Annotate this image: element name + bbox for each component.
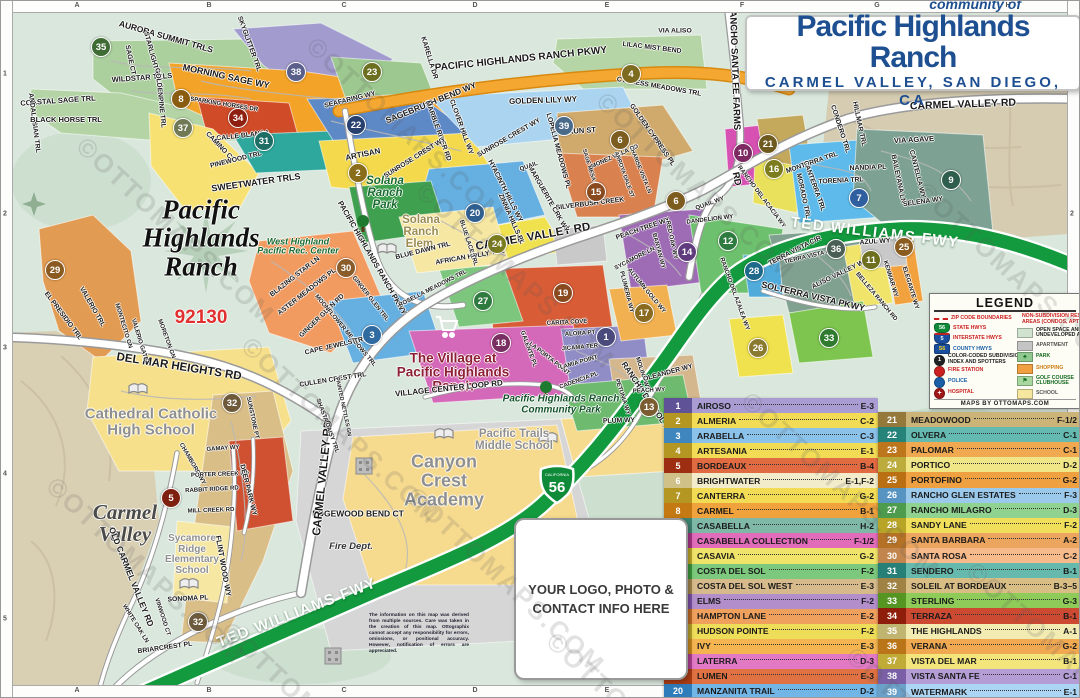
dotted-leader [974, 418, 1054, 419]
legend-item-label: COUNTY HWYS [953, 347, 992, 353]
index-row-gridref: G-2 [1063, 641, 1080, 651]
index-row: 29SANTA BARBARAA-2 [878, 533, 1080, 548]
index-row-name: HAMPTON LANE [692, 611, 766, 621]
dotted-leader [763, 479, 842, 480]
dotted-leader [965, 478, 1060, 479]
svg-text:CALIFORNIA: CALIFORNIA [545, 472, 569, 477]
index-row-gridref: D-3 [1063, 505, 1080, 515]
index-row-name: OLVERA [906, 430, 946, 440]
grid-letter: B [206, 2, 211, 9]
index-row-gridref: C-3 [860, 431, 878, 441]
index-row-gridref: F-1/2 [854, 536, 878, 546]
index-row-gridref: B-3–5 [1054, 581, 1080, 591]
dotted-leader [724, 599, 858, 600]
index-row-gridref: C-2 [860, 416, 878, 426]
svg-text:56: 56 [549, 479, 566, 496]
index-row: 35THE HIGHLANDSA-1 [878, 624, 1080, 639]
index-row-name: VERANA [906, 641, 947, 651]
index-row-gridref: F-2 [861, 596, 878, 606]
index-row-gridref: F-2 [1064, 520, 1080, 530]
index-row-name: TERRAZA [906, 611, 952, 621]
index-row-name: PALOMAR [906, 445, 954, 455]
dotted-leader [737, 509, 857, 510]
index-row-gridref: H-2 [860, 521, 878, 531]
legend-fire-icon [934, 366, 945, 377]
legend-item: NON-SUBDIVISION RESIDENTIAL AREAS (CONDO… [1017, 314, 1078, 325]
index-row: 37VISTA DEL MARB-1 [878, 654, 1080, 669]
index-row-number: 8 [664, 503, 692, 518]
index-row-number: 31 [878, 563, 906, 578]
index-row-number: 32 [878, 578, 906, 593]
dotted-leader [970, 523, 1061, 524]
index-row-gridref: F-3 [1064, 490, 1080, 500]
grid-number: 2 [1070, 211, 1074, 218]
logo-placeholder-box: YOUR LOGO, PHOTO & CONTACT INFO HERE [514, 518, 688, 680]
index-row: 34TERRAZAB-1 [878, 608, 1080, 623]
legend-police-icon [934, 377, 945, 388]
dotted-leader [778, 689, 857, 690]
dotted-leader [731, 674, 858, 675]
index-row: 22OLVERAC-1 [878, 427, 1080, 442]
index-row-gridref: E-1,F-2 [845, 476, 878, 486]
index-row: 6BRIGHTWATERE-1,F-2 [664, 473, 878, 488]
grid-number: 5 [3, 616, 7, 623]
disclaimer-text: The information on this map was derived … [369, 613, 469, 655]
index-row-gridref: E-1 [1064, 687, 1080, 697]
index-row: 38VISTA SANTA FEC-1 [878, 669, 1080, 684]
index-row-name: THE HIGHLANDS [906, 626, 982, 636]
legend-sw-icon: ♣ [1017, 352, 1033, 362]
index-row-name: VISTA DEL MAR [906, 656, 977, 666]
index-row-name: COSTA DEL SOL WEST [692, 581, 793, 591]
legend-item: APARTMENT [1017, 341, 1078, 351]
index-row-name: PORTICO [906, 460, 950, 470]
index-row-name: COSTA DEL SOL [692, 566, 766, 576]
index-row: 8CARMELB-1 [664, 503, 878, 518]
dotted-leader [747, 434, 857, 435]
school-book-icon [378, 244, 396, 253]
legend-item-label: ZIP CODE BOUNDARIES [951, 316, 1012, 322]
legend-item: +HOSPITAL [934, 388, 1015, 399]
index-row-gridref: C-2 [1063, 551, 1080, 561]
index-col-left: 1AIROSOE-32ALMERIAC-23ARABELLAC-34ARTESA… [664, 398, 878, 698]
legend-item: ⚑GOLF COURSE CLUBHOUSE [1017, 376, 1078, 387]
legend-item-label: GOLF COURSE CLUBHOUSE [1036, 376, 1074, 387]
legend-item-label: COLOR-CODED SUBDIVISION INDEX AND SPOTTE… [948, 354, 1022, 365]
index-row-name: HUDSON POINTE [692, 626, 769, 636]
index-row-gridref: G-3 [1063, 596, 1080, 606]
legend-title: LEGEND [934, 296, 1076, 312]
legend-item: ♣PARK [1017, 352, 1078, 362]
dotted-leader [738, 554, 857, 555]
index-row-gridref: B-1 [1063, 566, 1080, 576]
index-row-name: ALMERIA [692, 416, 736, 426]
index-row-number: 1 [664, 398, 692, 413]
dotted-leader [748, 494, 856, 495]
index-row: 19LUMENE-3 [664, 669, 878, 684]
dotted-leader [811, 539, 851, 540]
index-row: 13COSTA DEL SOL WESTE-3 [664, 579, 878, 594]
index-row-number: 28 [878, 518, 906, 533]
legend-item-label: HOSPITAL [948, 390, 974, 396]
index-row: 33STERLINGG-3 [878, 593, 1080, 608]
index-row: 3ARABELLAC-3 [664, 428, 878, 443]
index-row-number: 35 [878, 624, 906, 639]
index-row-gridref: C-1 [1063, 430, 1080, 440]
index-row-name: VISTA SANTA FE [906, 671, 980, 681]
index-row-number: 29 [878, 533, 906, 548]
grid-letter: C [341, 687, 346, 694]
index-row: 36VERANAG-2 [878, 639, 1080, 654]
dotted-leader [995, 508, 1060, 509]
index-row: 17IVYE-3 [664, 639, 878, 654]
index-row-name: SANTA BARBARA [906, 535, 985, 545]
legend-sw-icon: ⚑ [1017, 376, 1033, 386]
dotted-leader [769, 569, 859, 570]
legend-col-right: NON-SUBDIVISION RESIDENTIAL AREAS (CONDO… [1017, 314, 1078, 398]
index-row: 16HUDSON POINTEF-2 [664, 624, 878, 639]
dotted-leader [750, 449, 857, 450]
legend-col-left: ZIP CODE BOUNDARIES56STATE HWYS5INTERSTA… [934, 314, 1015, 398]
ruler-left: 12345 [1, 1, 13, 698]
index-row-number: 30 [878, 548, 906, 563]
index-row-name: CASABELLA COLLECTION [692, 536, 808, 546]
grid-letter: E [605, 687, 610, 694]
index-row: 1AIROSOE-3 [664, 398, 878, 413]
index-row-name: MEADOWOOD [906, 415, 971, 425]
index-row: 32SOLEIL AT BORDEAUXB-3–5 [878, 578, 1080, 593]
index-row: 4ARTESANIAE-1 [664, 443, 878, 458]
index-row: 23PALOMARC-1 [878, 442, 1080, 457]
legend-sw-icon [1017, 341, 1033, 351]
grid-letter: A [74, 687, 79, 694]
index-row-gridref: D-2 [860, 686, 878, 696]
index-row-name: CASAVIA [692, 551, 735, 561]
legend-item-label: SHOPPING [1036, 366, 1063, 372]
school-book-icon [129, 384, 147, 393]
legend-item: 1COLOR-CODED SUBDIVISION INDEX AND SPOTT… [934, 354, 1015, 365]
building-icon [356, 458, 372, 474]
index-row-gridref: B-1 [1063, 611, 1080, 621]
dotted-leader [950, 644, 1059, 645]
community-of-label: community of [753, 0, 1073, 11]
index-row-name: LUMEN [692, 671, 728, 681]
index-row: 20MANZANITA TRAILD-2 [664, 684, 878, 698]
title-block: community of Pacific Highlands Ranch CAR… [745, 15, 1080, 91]
index-row: 26RANCHO GLEN ESTATESF-3 [878, 488, 1080, 503]
index-row: 10CASABELLA COLLECTIONF-1/2 [664, 533, 878, 548]
map-page: CALIFORNIA 56 Pacific Highlands Ranch921… [0, 0, 1080, 698]
index-row-gridref: E-2 [861, 611, 878, 621]
index-row-name: SANTA ROSA [906, 551, 967, 561]
grid-letter: A [74, 2, 79, 9]
dotted-leader [714, 644, 858, 645]
dotted-leader [988, 538, 1060, 539]
index-row-name: RANCHO MILAGRO [906, 505, 992, 515]
legend-item-label: OPEN SPACE AND UNDEVELOPED AREAS [1036, 328, 1080, 339]
dotted-leader [985, 629, 1060, 630]
legend-zip-icon [934, 318, 948, 320]
index-row-number: 7 [664, 488, 692, 503]
index-row: 31SENDEROB-1 [878, 563, 1080, 578]
dotted-leader [740, 659, 857, 660]
legend-item: SHOPPING [1017, 364, 1078, 374]
legend-footer: MAPS BY OTTOMAPS.COM [934, 399, 1076, 407]
legend-item: 5INTERSTATE HWYS [934, 333, 1015, 344]
index-row-name: CASABELLA [692, 521, 750, 531]
legend-item: POLICE [934, 377, 1015, 388]
index-row-name: SANDY LANE [906, 520, 967, 530]
legend-sw-icon [1017, 364, 1033, 374]
index-row: 7CANTERRAG-2 [664, 488, 878, 503]
index-row-number: 21 [878, 412, 906, 427]
index-row-number: 6 [664, 473, 692, 488]
legend-item: 56STATE HWYS [934, 323, 1015, 333]
legend-item-label: APARTMENT [1036, 343, 1068, 349]
index-row-number: 2 [664, 413, 692, 428]
legend-item-label: STATE HWYS [953, 326, 986, 332]
index-row-gridref: B-1 [860, 506, 878, 516]
index-row-name: AIROSO [692, 401, 731, 411]
index-row: 39WATERMARKE-1 [878, 684, 1080, 698]
index-row-name: CANTERRA [692, 491, 745, 501]
index-row: 15HAMPTON LANEE-2 [664, 609, 878, 624]
index-row: 24PORTICOD-2 [878, 457, 1080, 472]
index-row-number: 5 [664, 458, 692, 473]
index-row-gridref: C-1 [1063, 671, 1080, 681]
grid-letter: D [472, 687, 477, 694]
index-row-number: 33 [878, 593, 906, 608]
dotted-leader [970, 554, 1060, 555]
index-row: 5BORDEAUXB-4 [664, 458, 878, 473]
index-row: 2ALMERIAC-2 [664, 413, 878, 428]
legend-sw-icon [1017, 389, 1033, 399]
region-solana-ranch-elem [399, 207, 509, 273]
index-row-gridref: E-1 [861, 446, 878, 456]
index-row-gridref: B-1 [1063, 656, 1080, 666]
index-row-number: 3 [664, 428, 692, 443]
index-row-gridref: F-2 [861, 626, 878, 636]
legend-state-icon: 56 [934, 323, 950, 333]
index-row-number: 23 [878, 442, 906, 457]
index-row: 25PORTOFINOG-2 [878, 472, 1080, 487]
index-row: 9CASABELLAH-2 [664, 518, 878, 533]
legend-sw-icon [1017, 328, 1033, 338]
index-row: 21MEADOWOODF-1/2 [878, 412, 1080, 427]
legend-item: SCHOOL [1017, 389, 1078, 399]
legend-item: ZIP CODE BOUNDARIES [934, 314, 1015, 323]
index-row-name: ARTESANIA [692, 446, 747, 456]
index-row-name: ELMS [692, 596, 721, 606]
grid-letter: D [472, 2, 477, 9]
page-subtitle: CARMEL VALLEY, SAN DIEGO, CA [753, 74, 1073, 110]
legend-box: LEGEND ZIP CODE BOUNDARIES56STATE HWYS5I… [929, 293, 1080, 409]
index-row-number: 26 [878, 488, 906, 503]
school-book-icon [539, 433, 557, 442]
grid-letter: C [341, 2, 346, 9]
legend-item-label: PARK [1036, 354, 1050, 360]
dotted-leader [949, 433, 1060, 434]
index-row-name: SENDERO [906, 566, 954, 576]
dotted-leader [769, 614, 858, 615]
grid-number: 4 [3, 471, 7, 478]
index-row-number: 27 [878, 503, 906, 518]
index-row-gridref: E-3 [861, 641, 878, 651]
dotted-leader [753, 524, 857, 525]
index-row-gridref: E-3 [861, 671, 878, 681]
index-row: 14ELMSF-2 [664, 594, 878, 609]
legend-item-label: FIRE STATION [948, 368, 983, 374]
dotted-leader [772, 629, 858, 630]
index-row-gridref: A-2 [1063, 535, 1080, 545]
index-row: 27RANCHO MILAGROD-3 [878, 503, 1080, 518]
legend-item: FIRE STATION [934, 366, 1015, 377]
index-row-number: 36 [878, 639, 906, 654]
legend-item-label: NON-SUBDIVISION RESIDENTIAL AREAS (CONDO… [1022, 314, 1080, 325]
grid-number: 2 [3, 211, 7, 218]
index-row-name: SOLEIL AT BORDEAUX [906, 581, 1006, 591]
index-row-gridref: F-2 [861, 566, 878, 576]
dotted-leader [749, 464, 857, 465]
region-ivy [609, 285, 677, 341]
index-row-name: IVY [692, 641, 711, 651]
index-row: 18LATERRAD-3 [664, 654, 878, 669]
index-row-name: PORTOFINO [906, 475, 962, 485]
grid-number: 3 [3, 345, 7, 352]
dotted-leader [957, 448, 1060, 449]
dotted-leader [957, 569, 1061, 570]
index-row-gridref: F-1/2 [1057, 415, 1080, 425]
legend-item-label: INTERSTATE HWYS [953, 336, 1002, 342]
index-row-number: 24 [878, 457, 906, 472]
index-row-number: 25 [878, 472, 906, 487]
index-row: 28SANDY LANEF-2 [878, 518, 1080, 533]
dotted-leader [980, 659, 1060, 660]
dotted-leader [1009, 584, 1050, 585]
index-row-number: 37 [878, 654, 906, 669]
index-row-name: RANCHO GLEN ESTATES [906, 490, 1016, 500]
index-row-gridref: B-4 [860, 461, 878, 471]
dotted-leader [796, 584, 858, 585]
index-row-name: ARABELLA [692, 431, 744, 441]
index-row-name: WATERMARK [906, 687, 967, 697]
dotted-leader [970, 690, 1060, 691]
index-row-gridref: E-3 [861, 401, 878, 411]
dotted-leader [953, 463, 1060, 464]
index-row-gridref: C-1 [1063, 445, 1080, 455]
index-row-name: BORDEAUX [692, 461, 746, 471]
index-row-gridref: G-2 [860, 491, 878, 501]
index-row-name: BRIGHTWATER [692, 476, 760, 486]
school-book-icon [180, 579, 198, 588]
index-col-right: 21MEADOWOODF-1/222OLVERAC-123PALOMARC-12… [878, 412, 1080, 698]
region-bordeaux [229, 437, 293, 531]
dotted-leader [739, 419, 857, 420]
index-row-name: CARMEL [692, 506, 734, 516]
index-row-number: 20 [664, 684, 692, 698]
grid-letter: B [206, 687, 211, 694]
index-row-number: 22 [878, 427, 906, 442]
legend-item-label: SCHOOL [1036, 391, 1058, 397]
index-row-gridref: G-2 [1063, 475, 1080, 485]
legend-item-label: POLICE [948, 379, 967, 385]
dotted-leader [734, 404, 858, 405]
index-row-number: 38 [878, 669, 906, 684]
legend-item: OPEN SPACE AND UNDEVELOPED AREAS [1017, 328, 1078, 339]
dotted-leader [1019, 493, 1061, 494]
grid-letter: F [740, 2, 744, 9]
dotted-leader [983, 674, 1060, 675]
legend-interstate-icon: 5 [934, 333, 950, 344]
index-row-gridref: E-3 [861, 581, 878, 591]
region-rancho-glen-estates [729, 315, 793, 377]
index-row-gridref: D-3 [860, 656, 878, 666]
index-row-number: 39 [878, 684, 906, 698]
building-icon [325, 648, 341, 664]
legend-hospital-icon: + [934, 388, 945, 399]
school-book-icon [435, 429, 453, 438]
index-row-number: 4 [664, 443, 692, 458]
grid-letter: E [605, 2, 610, 9]
index-row-name: MANZANITA TRAIL [692, 686, 775, 696]
index-row: 12COSTA DEL SOLF-2 [664, 564, 878, 579]
index-row: 30SANTA ROSAC-2 [878, 548, 1080, 563]
dotted-leader [957, 599, 1059, 600]
index-row-name: STERLING [906, 596, 954, 606]
index-row-number: 34 [878, 608, 906, 623]
index-row-gridref: G-2 [860, 551, 878, 561]
page-title: Pacific Highlands Ranch [753, 11, 1073, 74]
index-row: 11CASAVIAG-2 [664, 548, 878, 563]
grid-number: 1 [3, 71, 7, 78]
dotted-leader [955, 614, 1060, 615]
legend-spotter-icon: 1 [934, 355, 945, 366]
index-row-gridref: A-1 [1063, 626, 1080, 636]
index-row-name: LATERRA [692, 656, 737, 666]
index-row-gridref: D-2 [1063, 460, 1080, 470]
